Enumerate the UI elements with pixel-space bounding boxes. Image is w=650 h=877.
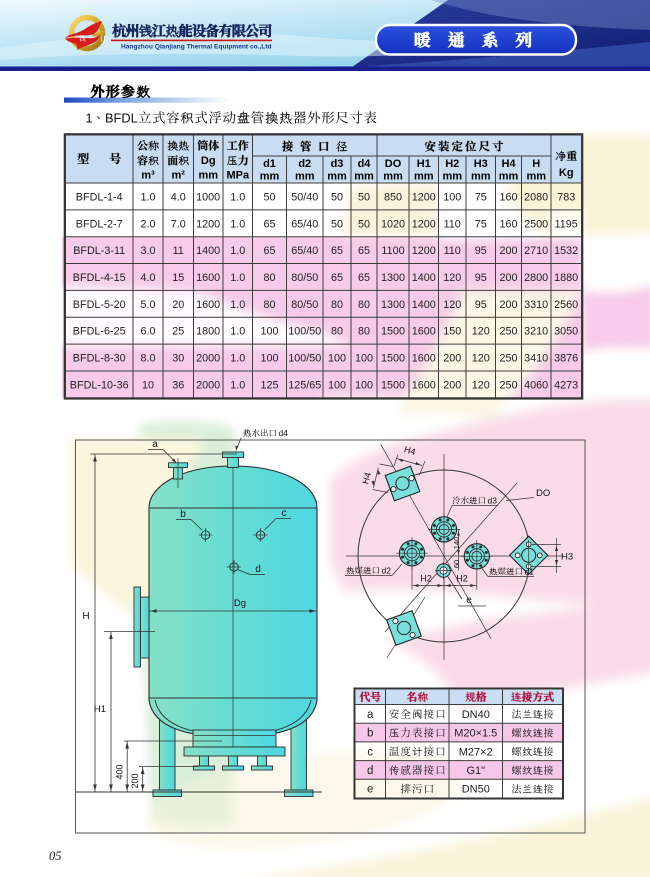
svg-text:1.0: 1.0: [230, 326, 245, 338]
svg-text:mm: mm: [198, 170, 218, 182]
svg-text:M27×2: M27×2: [459, 746, 493, 758]
svg-text:50: 50: [358, 191, 370, 203]
svg-text:1.0: 1.0: [230, 299, 245, 311]
svg-text:4060: 4060: [524, 379, 548, 391]
svg-text:100: 100: [328, 353, 346, 365]
svg-text:b: b: [180, 509, 186, 520]
svg-text:95: 95: [475, 245, 487, 257]
svg-text:80: 80: [331, 299, 343, 311]
svg-text:2800: 2800: [524, 272, 548, 284]
svg-text:d: d: [255, 564, 261, 575]
svg-text:1.0: 1.0: [230, 245, 245, 257]
svg-text:d: d: [367, 765, 373, 777]
svg-text:95: 95: [475, 272, 487, 284]
svg-text:1800: 1800: [196, 326, 220, 338]
svg-text:1.0: 1.0: [140, 191, 155, 203]
svg-text:65: 65: [263, 245, 275, 257]
svg-text:6.0: 6.0: [140, 326, 155, 338]
svg-text:100: 100: [328, 379, 346, 391]
svg-text:200: 200: [443, 379, 461, 391]
svg-text:80: 80: [263, 299, 275, 311]
svg-text:1020: 1020: [381, 218, 405, 230]
svg-text:250: 250: [499, 379, 517, 391]
svg-text:H: H: [82, 611, 89, 622]
svg-text:100: 100: [355, 379, 373, 391]
svg-text:mm: mm: [471, 171, 491, 183]
svg-text:100/50: 100/50: [288, 353, 321, 365]
svg-text:2500: 2500: [524, 218, 548, 230]
svg-text:3876: 3876: [554, 353, 578, 365]
svg-text:1200: 1200: [412, 245, 436, 257]
svg-text:3.0: 3.0: [140, 245, 155, 257]
svg-text:d1: d1: [263, 158, 276, 170]
svg-text:H4: H4: [501, 158, 516, 170]
svg-text:4273: 4273: [554, 379, 578, 391]
svg-text:65: 65: [331, 272, 343, 284]
svg-text:M20×1.5: M20×1.5: [454, 728, 497, 740]
svg-text:1000: 1000: [196, 191, 220, 203]
svg-text:200: 200: [499, 272, 517, 284]
svg-text:DO: DO: [385, 158, 402, 170]
svg-text:BFDL-6-25: BFDL-6-25: [73, 326, 126, 338]
svg-text:d3: d3: [331, 158, 344, 170]
svg-text:1500: 1500: [381, 379, 405, 391]
svg-text:BFDL-10-36: BFDL-10-36: [70, 379, 129, 391]
svg-text:3050: 3050: [554, 326, 578, 338]
svg-text:mm: mm: [354, 171, 374, 183]
svg-text:80/50: 80/50: [291, 272, 318, 284]
svg-text:mm: mm: [383, 171, 403, 183]
svg-text:G1": G1": [466, 765, 485, 777]
svg-text:75: 75: [475, 218, 487, 230]
svg-text:1400: 1400: [196, 245, 220, 257]
svg-text:110: 110: [444, 218, 461, 230]
svg-text:65/40: 65/40: [291, 245, 318, 257]
svg-text:1880: 1880: [554, 272, 578, 284]
svg-text:2000: 2000: [196, 379, 220, 391]
svg-text:250: 250: [499, 353, 517, 365]
svg-text:1100: 1100: [381, 245, 404, 257]
svg-text:15: 15: [172, 272, 184, 284]
svg-text:1.0: 1.0: [230, 191, 245, 203]
svg-text:60: 60: [452, 560, 461, 568]
svg-text:d3: d3: [488, 496, 498, 506]
svg-text:1: 1: [85, 111, 92, 126]
svg-text:10: 10: [142, 379, 154, 391]
svg-text:120: 120: [472, 326, 490, 338]
svg-text:Dg: Dg: [234, 598, 246, 609]
svg-text:1.0: 1.0: [230, 353, 245, 365]
svg-text:50: 50: [263, 191, 275, 203]
svg-text:1195: 1195: [555, 218, 578, 230]
svg-text:DN40: DN40: [462, 709, 490, 721]
svg-text:4.0: 4.0: [140, 272, 155, 284]
svg-text:BFDL-2-7: BFDL-2-7: [76, 218, 123, 230]
svg-text:5.0: 5.0: [140, 299, 155, 311]
svg-text:100: 100: [260, 353, 278, 365]
svg-text:1600: 1600: [412, 353, 436, 365]
svg-text:MPa: MPa: [226, 170, 250, 182]
svg-text:1500: 1500: [381, 353, 405, 365]
svg-text:3210: 3210: [524, 326, 548, 338]
svg-text:140: 140: [452, 537, 461, 550]
svg-text:Hangzhou Qianjiang Thermal Equ: Hangzhou Qianjiang Thermal Equipment co.…: [121, 44, 272, 51]
svg-text:d2: d2: [298, 158, 311, 170]
svg-text:05: 05: [49, 849, 62, 863]
svg-text:mm: mm: [499, 171, 519, 183]
svg-text:200: 200: [443, 353, 461, 365]
svg-text:2000: 2000: [196, 353, 220, 365]
svg-text:c: c: [282, 508, 287, 519]
svg-text:1400: 1400: [412, 299, 436, 311]
svg-text:50: 50: [331, 191, 343, 203]
svg-text:50: 50: [331, 218, 343, 230]
svg-text:m³: m³: [141, 170, 155, 182]
svg-text:mm: mm: [295, 171, 315, 183]
svg-text:1.0: 1.0: [230, 272, 245, 284]
svg-text:125: 125: [260, 379, 278, 391]
svg-text:100: 100: [260, 326, 278, 338]
svg-text:BFDL-3-11: BFDL-3-11: [73, 245, 125, 257]
svg-text:160: 160: [499, 218, 517, 230]
svg-text:BFDL-4-15: BFDL-4-15: [73, 272, 126, 284]
svg-text:BFDL-1-4: BFDL-1-4: [76, 191, 123, 203]
svg-text:e: e: [367, 784, 373, 796]
svg-text:DO: DO: [536, 488, 550, 499]
svg-text:50: 50: [358, 218, 370, 230]
svg-text:65: 65: [263, 218, 275, 230]
svg-text:1200: 1200: [412, 218, 436, 230]
svg-text:110: 110: [444, 245, 461, 257]
svg-text:250: 250: [499, 326, 517, 338]
svg-text:1400: 1400: [412, 272, 436, 284]
svg-text:d2: d2: [382, 566, 392, 576]
svg-text:H1: H1: [417, 158, 431, 170]
svg-text:1300: 1300: [381, 299, 405, 311]
svg-text:120: 120: [443, 299, 461, 311]
svg-text:1200: 1200: [196, 218, 220, 230]
svg-text:120: 120: [472, 353, 490, 365]
svg-text:e: e: [466, 595, 472, 606]
svg-text:2.0: 2.0: [140, 218, 155, 230]
svg-text:200: 200: [499, 299, 517, 311]
svg-text:m²: m²: [172, 170, 186, 182]
svg-text:d1: d1: [525, 567, 535, 577]
svg-text:H3: H3: [561, 552, 573, 563]
svg-text:1600: 1600: [412, 379, 436, 391]
svg-text:2080: 2080: [524, 191, 548, 203]
svg-text:160: 160: [499, 191, 517, 203]
svg-text:H3: H3: [474, 158, 488, 170]
svg-text:95: 95: [475, 299, 487, 311]
svg-text:mm: mm: [526, 171, 546, 183]
svg-text:1600: 1600: [196, 272, 220, 284]
svg-text:80: 80: [358, 299, 370, 311]
svg-text:H2: H2: [456, 574, 468, 584]
svg-text:8.0: 8.0: [140, 353, 155, 365]
svg-text:100: 100: [355, 353, 373, 365]
svg-text:1600: 1600: [412, 326, 436, 338]
svg-text:65/40: 65/40: [291, 218, 318, 230]
svg-text:1.0: 1.0: [230, 379, 245, 391]
svg-text:1300: 1300: [381, 272, 405, 284]
svg-text:d4: d4: [358, 158, 372, 170]
svg-text:7.0: 7.0: [171, 218, 186, 230]
svg-text:120: 120: [443, 272, 461, 284]
svg-text:150: 150: [443, 326, 461, 338]
svg-text:BFDL: BFDL: [105, 110, 138, 125]
svg-text:1500: 1500: [381, 326, 405, 338]
svg-text:65: 65: [331, 245, 343, 257]
svg-text:30: 30: [172, 353, 184, 365]
svg-text:mm: mm: [442, 171, 462, 183]
svg-text:100/50: 100/50: [288, 326, 321, 338]
svg-text:3410: 3410: [524, 353, 548, 365]
svg-text:125/65: 125/65: [288, 379, 321, 391]
svg-text:80/50: 80/50: [291, 299, 318, 311]
svg-text:a: a: [367, 709, 374, 721]
svg-text:DN50: DN50: [462, 784, 490, 796]
svg-text:H2: H2: [445, 158, 459, 170]
svg-text:1532: 1532: [554, 245, 578, 257]
svg-text:783: 783: [557, 191, 575, 203]
svg-text:1.0: 1.0: [230, 218, 245, 230]
svg-text:3310: 3310: [524, 299, 548, 311]
svg-text:2710: 2710: [524, 245, 548, 257]
svg-text:mm: mm: [327, 171, 347, 183]
svg-text:2560: 2560: [554, 299, 578, 311]
svg-text:80: 80: [331, 326, 343, 338]
svg-text:1600: 1600: [196, 299, 220, 311]
svg-text:BFDL-5-20: BFDL-5-20: [73, 299, 126, 311]
svg-text:80: 80: [263, 272, 275, 284]
svg-text:65: 65: [358, 245, 370, 257]
svg-text:BFDL-8-30: BFDL-8-30: [73, 353, 126, 365]
svg-text:50/40: 50/40: [291, 191, 318, 203]
svg-text:120: 120: [472, 379, 490, 391]
svg-text:36: 36: [172, 379, 184, 391]
svg-text:100: 100: [443, 191, 461, 203]
svg-text:4.0: 4.0: [171, 191, 186, 203]
svg-text:mm: mm: [260, 171, 280, 183]
svg-text:a: a: [152, 439, 158, 450]
svg-text:75: 75: [475, 191, 487, 203]
svg-text:11: 11: [173, 245, 184, 257]
svg-text:20: 20: [172, 299, 184, 311]
svg-text:80: 80: [358, 326, 370, 338]
svg-text:1200: 1200: [412, 191, 436, 203]
svg-text:400: 400: [115, 764, 125, 779]
svg-text:H: H: [532, 158, 540, 170]
svg-text:d4: d4: [279, 428, 289, 438]
svg-text:Kg: Kg: [559, 167, 574, 179]
svg-text:b: b: [367, 728, 373, 740]
svg-text:200: 200: [499, 245, 517, 257]
svg-text:200: 200: [130, 773, 140, 788]
svg-text:H2: H2: [420, 574, 432, 584]
svg-text:H1: H1: [94, 704, 106, 715]
svg-text:65: 65: [358, 272, 370, 284]
svg-text:Dg: Dg: [201, 155, 216, 167]
svg-text:c: c: [367, 746, 373, 758]
svg-text:850: 850: [384, 191, 402, 203]
svg-text:mm: mm: [414, 171, 434, 183]
svg-text:25: 25: [172, 326, 184, 338]
